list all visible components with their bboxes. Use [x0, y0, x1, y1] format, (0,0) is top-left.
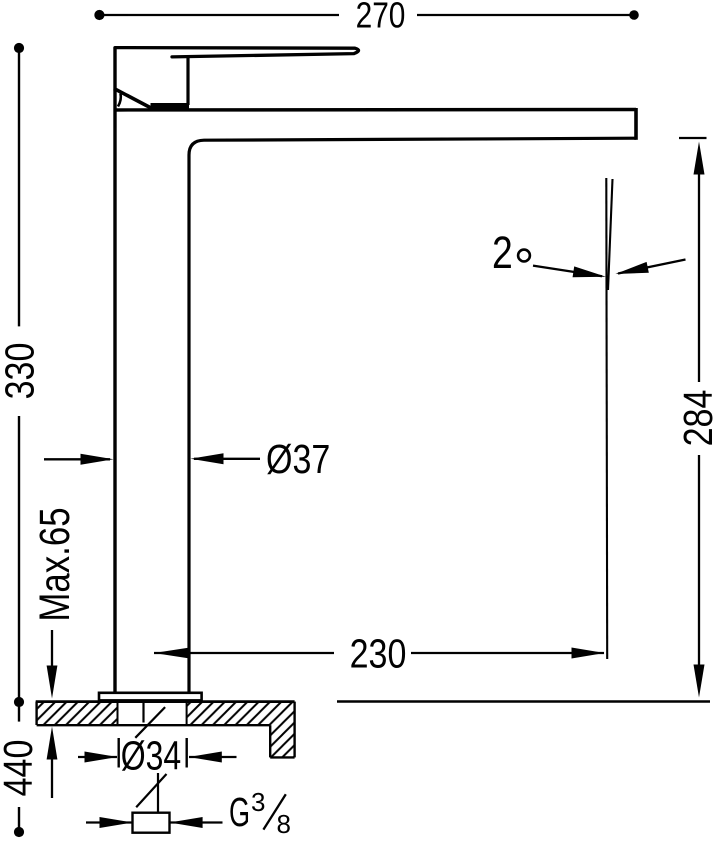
svg-text:8: 8 [277, 809, 291, 839]
svg-text:230: 230 [350, 631, 407, 677]
svg-text:Ø37: Ø37 [266, 436, 330, 482]
svg-text:284: 284 [675, 390, 720, 447]
svg-text:Max.65: Max.65 [32, 507, 79, 621]
svg-text:440: 440 [0, 740, 41, 797]
svg-text:3: 3 [251, 787, 265, 817]
svg-text:Ø34: Ø34 [121, 733, 181, 779]
svg-text:G: G [229, 791, 250, 836]
svg-text:270: 270 [356, 0, 406, 36]
svg-text:330: 330 [0, 343, 42, 400]
svg-text:2: 2 [492, 228, 513, 278]
